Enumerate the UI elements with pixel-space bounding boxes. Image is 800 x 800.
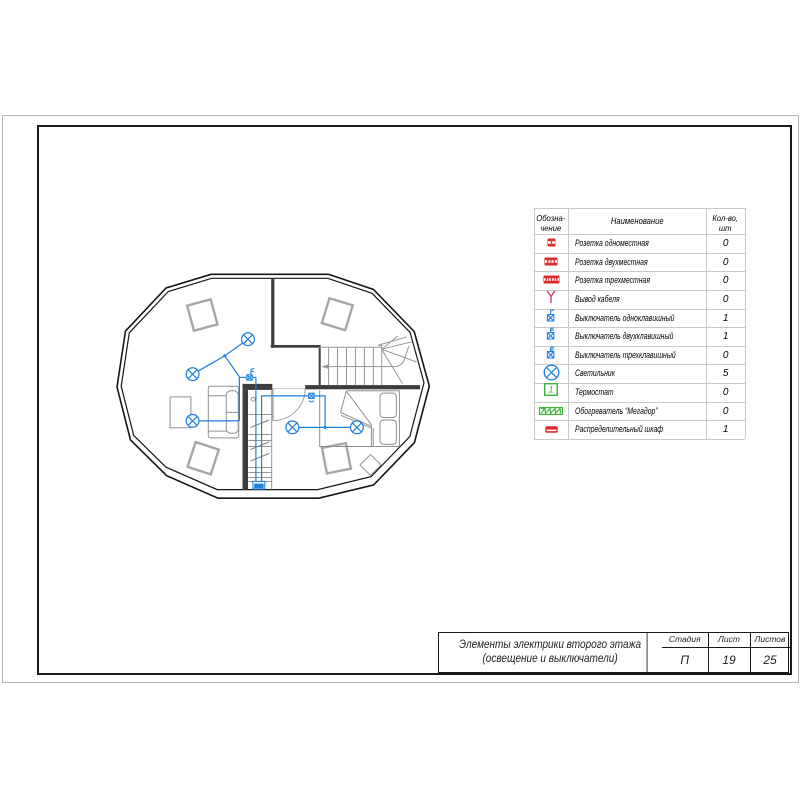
svg-text:1: 1 — [549, 384, 554, 394]
